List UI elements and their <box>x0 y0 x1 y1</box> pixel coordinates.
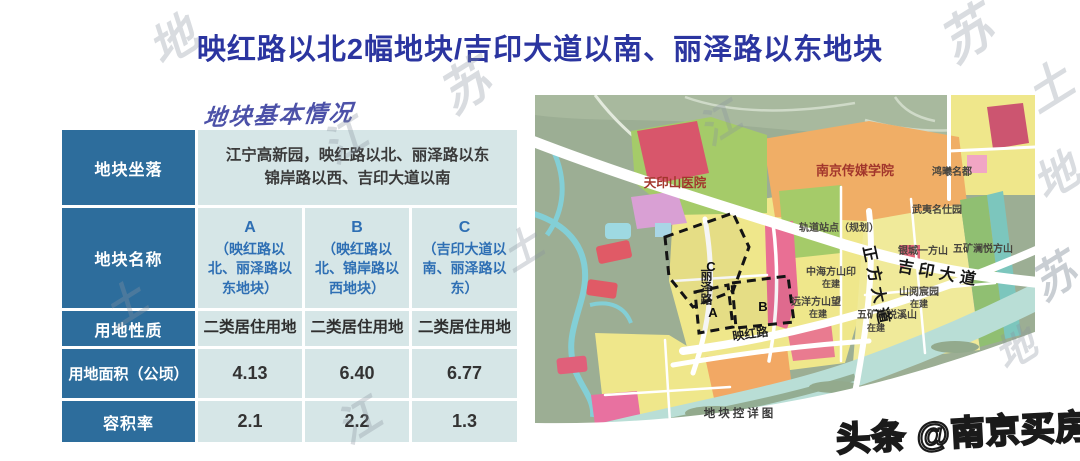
label-yuanyang-status: 在建 <box>809 308 828 319</box>
label-yincheng-yifangshan: 银城一方山 <box>898 244 948 257</box>
location-line2: 锦岸路以西、吉印大道以南 <box>264 168 450 190</box>
label-metro-station: 轨道站点（规划） <box>799 221 879 234</box>
cell-far-c: 1.3 <box>412 401 517 442</box>
label-yuanyang-fangshanwang: 远洋方山望 <box>791 295 841 308</box>
parcel-b-name: （映红路以北、锦岸路以西地块） <box>309 240 405 299</box>
parcel-b-id: B <box>351 217 363 239</box>
label-shanyue-status: 在建 <box>910 298 929 309</box>
parcel-c-name: （吉印大道以南、丽泽路以东） <box>416 240 513 299</box>
row-label-area: 用地面积（公顷） <box>62 349 195 398</box>
label-community-northeast: 鸿曦名都 <box>932 165 972 178</box>
label-parcel-a: A <box>708 305 718 320</box>
cell-land-use-c: 二类居住用地 <box>412 311 517 346</box>
row-label-far: 容积率 <box>62 401 195 442</box>
label-road-lize: 丽泽路 <box>699 269 713 306</box>
row-label-name: 地块名称 <box>62 208 195 308</box>
label-zhonghai-status: 在建 <box>822 278 841 289</box>
map-caption: 地块控详图 <box>704 406 777 420</box>
label-hospital: 天印山医院 <box>644 175 707 190</box>
label-shanyue-chenyuan: 山阅宸园 <box>899 285 939 298</box>
cell-name-b: B （映红路以北、锦岸路以西地块） <box>305 208 409 308</box>
row-label-location: 地块坐落 <box>62 130 195 205</box>
cell-name-c: C （吉印大道以南、丽泽路以东） <box>412 208 517 308</box>
section-header: 地块基本情况 <box>202 93 356 132</box>
location-line1: 江宁高新园，映红路以北、丽泽路以东 <box>226 145 490 167</box>
page-title: 映红路以北2幅地块/吉印大道以南、丽泽路以东地块 <box>0 26 1080 68</box>
label-parcel-b: B <box>758 299 767 314</box>
cell-far-a: 2.1 <box>198 401 302 442</box>
parcel-info-table: 地块坐落 江宁高新园，映红路以北、丽泽路以东 锦岸路以西、吉印大道以南 地块名称… <box>62 130 517 442</box>
planning-map: 天印山医院 南京传媒学院 轨道站点（规划） 鸿曦名都 武夷名仕园 银城一方山 五… <box>535 95 1035 440</box>
row-label-land-use: 用地性质 <box>62 311 195 346</box>
cell-area-a: 4.13 <box>198 349 302 398</box>
cell-location: 江宁高新园，映红路以北、丽泽路以东 锦岸路以西、吉印大道以南 <box>198 130 517 205</box>
cell-name-a: A （映红路以北、丽泽路以东地块） <box>198 208 302 308</box>
parcel-a-name: （映红路以北、丽泽路以东地块） <box>202 240 298 299</box>
cell-area-b: 6.40 <box>305 349 409 398</box>
label-parcel-c: C <box>706 259 716 274</box>
cell-land-use-b: 二类居住用地 <box>305 311 409 346</box>
cell-far-b: 2.2 <box>305 401 409 442</box>
label-wuyi-mingshiyuan: 武夷名仕园 <box>912 203 962 216</box>
planning-map-canvas: 天印山医院 南京传媒学院 轨道站点（规划） 鸿曦名都 武夷名仕园 银城一方山 五… <box>535 95 1035 440</box>
cell-land-use-a: 二类居住用地 <box>198 311 302 346</box>
label-college: 南京传媒学院 <box>816 163 894 178</box>
map-pond <box>605 223 631 239</box>
cell-area-c: 6.77 <box>412 349 517 398</box>
parcel-c-id: C <box>459 217 471 239</box>
parcel-a-id: A <box>244 217 256 239</box>
label-wukuang-fangshan: 五矿澜悦方山 <box>953 242 1013 255</box>
label-zhonghai-fangshanyin: 中海方山印 <box>806 265 856 278</box>
